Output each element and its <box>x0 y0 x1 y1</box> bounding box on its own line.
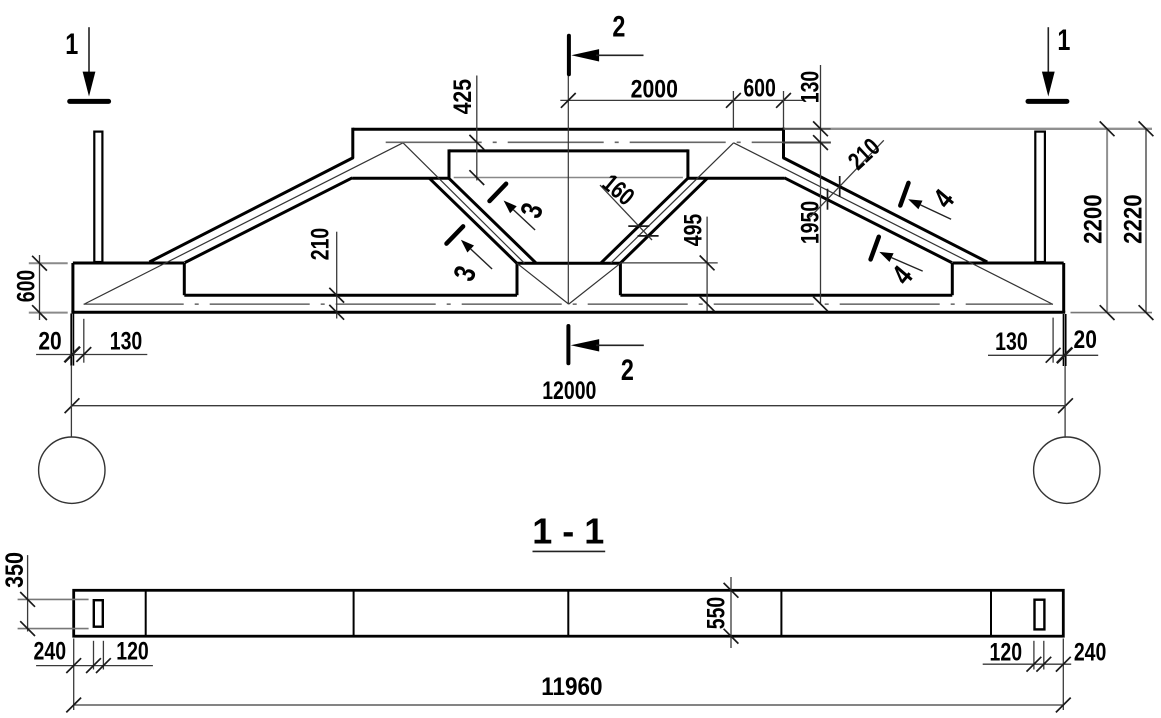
svg-text:12000: 12000 <box>542 377 596 405</box>
svg-text:2: 2 <box>612 10 625 43</box>
svg-text:11960: 11960 <box>541 673 602 701</box>
svg-text:210: 210 <box>306 228 334 261</box>
svg-text:130: 130 <box>110 327 143 355</box>
svg-text:600: 600 <box>12 270 40 303</box>
svg-text:2000: 2000 <box>631 75 678 103</box>
svg-text:2200: 2200 <box>1080 194 1107 243</box>
svg-text:425: 425 <box>448 79 476 115</box>
svg-text:120: 120 <box>116 637 149 665</box>
svg-text:20: 20 <box>38 327 61 355</box>
svg-text:240: 240 <box>1074 638 1107 666</box>
svg-text:600: 600 <box>743 74 776 102</box>
svg-text:130: 130 <box>995 328 1028 356</box>
svg-text:550: 550 <box>702 597 730 630</box>
svg-text:1 - 1: 1 - 1 <box>532 511 604 552</box>
svg-text:120: 120 <box>990 638 1023 666</box>
svg-text:20: 20 <box>1074 325 1097 353</box>
svg-text:1: 1 <box>1057 23 1070 56</box>
svg-text:495: 495 <box>679 214 707 247</box>
svg-text:2: 2 <box>621 353 634 386</box>
svg-text:350: 350 <box>0 552 28 588</box>
svg-text:1: 1 <box>65 27 78 60</box>
svg-text:2220: 2220 <box>1120 194 1147 243</box>
svg-text:240: 240 <box>34 637 67 665</box>
svg-text:130: 130 <box>796 71 824 104</box>
